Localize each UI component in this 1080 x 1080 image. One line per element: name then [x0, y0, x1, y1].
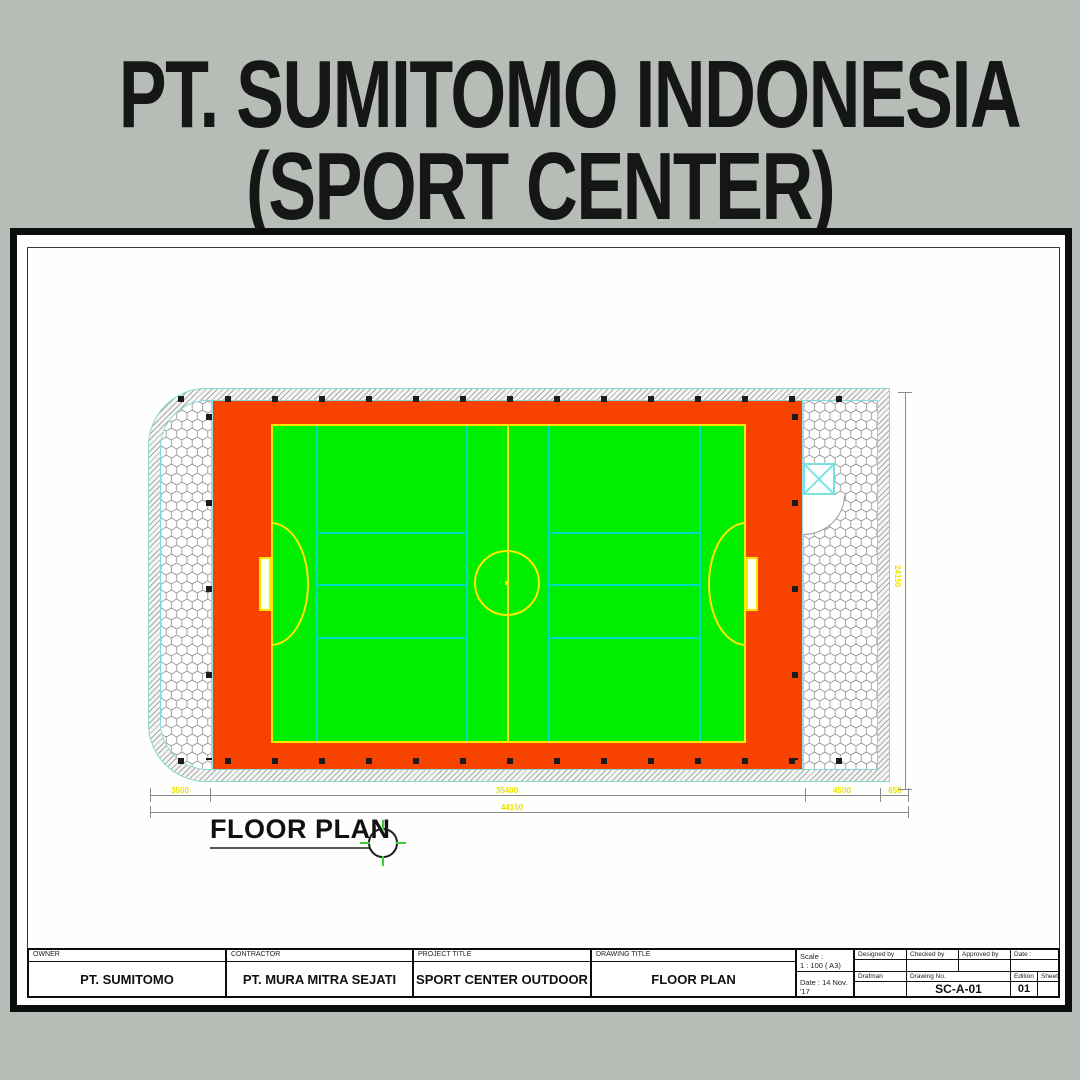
soccer-field — [271, 424, 746, 743]
title-block-drawing-title-cell: DRAWING TITLE FLOOR PLAN — [592, 950, 797, 996]
designed-by-cell: Designed by — [855, 950, 907, 971]
sheet-col-value — [1038, 982, 1058, 996]
title-block-owner-cell: OWNER PT. SUMITOMO — [29, 950, 227, 996]
floor-plan-drawing — [148, 388, 890, 782]
drafman-cell: Drafman — [855, 972, 907, 996]
dim-tick — [898, 392, 912, 393]
title-block-contractor-cell: CONTRACTOR PT. MURA MITRA SEJATI — [227, 950, 414, 996]
dim-total-bottom: 44150 — [501, 803, 523, 812]
drafman-value — [855, 982, 906, 996]
paving-hex-left — [161, 401, 211, 769]
designed-by-value — [855, 960, 906, 971]
dim-tick — [880, 788, 881, 802]
checked-by-label: Checked by — [907, 950, 958, 960]
approved-by-value — [959, 960, 1010, 971]
dim-tick — [210, 788, 211, 802]
sheet-col-cell: Sheet — [1038, 972, 1058, 996]
reference-circle — [368, 828, 398, 858]
checked-by-value — [907, 960, 958, 971]
caption-underline — [210, 847, 370, 849]
dim-tick — [898, 789, 912, 790]
drawing-no-cell: Drawing No. SC-A-01 — [907, 972, 1011, 996]
court-left-center-line — [316, 584, 468, 586]
dim-tick — [805, 788, 806, 802]
project-title-value: SPORT CENTER OUTDOOR — [414, 962, 590, 996]
date-col-label: Date : — [1011, 950, 1058, 960]
dim-tick — [150, 806, 151, 818]
approved-by-cell: Approved by — [959, 950, 1011, 971]
poster-title-line2: (SPORT CENTER) — [119, 140, 961, 234]
drawing-title-value: FLOOR PLAN — [592, 962, 795, 996]
drafman-label: Drafman — [855, 972, 906, 982]
edition-cell: Edition 01 — [1011, 972, 1038, 996]
drawing-title-label: DRAWING TITLE — [592, 950, 795, 962]
equipment-box — [803, 463, 835, 495]
dim-tick — [908, 806, 909, 818]
ref-tick-right — [396, 842, 406, 844]
designed-by-label: Designed by — [855, 950, 906, 960]
dim-segment-middle: 35400 — [496, 786, 518, 795]
dim-segment-edge: 650 — [888, 786, 901, 795]
column-posts-bottom — [178, 758, 878, 764]
court-right-center-line — [548, 584, 701, 586]
approved-by-label: Approved by — [959, 950, 1010, 960]
edition-label: Edition — [1011, 972, 1037, 982]
column-posts-top — [178, 396, 878, 402]
penalty-arc-left — [271, 522, 309, 646]
dim-segment-left: 3500 — [171, 786, 189, 795]
court-left-attack-line-bottom — [316, 637, 468, 639]
date-col-cell: Date : — [1011, 950, 1058, 971]
dim-right-vertical: 24150 — [893, 565, 902, 587]
dimension-line-vertical — [905, 392, 906, 790]
court-left-attack-line-top — [316, 532, 468, 534]
dim-segment-right: 4500 — [833, 786, 851, 795]
title-block-approval-grid: Designed by Checked by Approved by Date … — [855, 950, 1058, 996]
owner-label: OWNER — [29, 950, 225, 962]
goal-left — [259, 557, 271, 611]
checked-by-cell: Checked by — [907, 950, 959, 971]
dim-tick — [908, 788, 909, 802]
edition-value: 01 — [1011, 982, 1037, 996]
goal-right — [746, 557, 758, 611]
title-block-scale-cell: Scale : 1 : 100 ( A3) Date : 14 Nov. '17 — [797, 950, 855, 996]
court-right-attack-line-top — [548, 532, 701, 534]
column-posts-right — [792, 414, 798, 760]
dimension-line-segments — [150, 795, 908, 796]
dimension-line-total — [150, 812, 908, 813]
project-title-label: PROJECT TITLE — [414, 950, 590, 962]
poster-title-line1: PT. SUMITOMO INDONESIA — [119, 48, 961, 142]
title-block-project-cell: PROJECT TITLE SPORT CENTER OUTDOOR — [414, 950, 592, 996]
column-posts-left — [206, 414, 212, 760]
scale-label: Scale : — [800, 952, 853, 961]
ref-tick-left — [360, 842, 370, 844]
floor-plan-caption: FLOOR PLAN — [210, 814, 391, 845]
drawing-no-label: Drawing No. — [907, 972, 1010, 982]
owner-value: PT. SUMITOMO — [29, 962, 225, 996]
date-col-value — [1011, 960, 1058, 971]
title-block: OWNER PT. SUMITOMO CONTRACTOR PT. MURA M… — [27, 948, 1060, 998]
center-spot — [505, 581, 509, 585]
contractor-label: CONTRACTOR — [227, 950, 412, 962]
contractor-value: PT. MURA MITRA SEJATI — [227, 962, 412, 996]
ref-tick-bottom — [382, 856, 384, 866]
penalty-arc-right — [708, 522, 746, 646]
sheet-col-label: Sheet — [1038, 972, 1058, 982]
date-text: Date : 14 Nov. '17 — [797, 972, 853, 996]
poster-canvas: PT. SUMITOMO INDONESIA (SPORT CENTER) OW… — [0, 0, 1080, 1080]
court-right-attack-line-bottom — [548, 637, 701, 639]
paving-hex-right — [804, 401, 877, 769]
drawing-no-value: SC-A-01 — [907, 982, 1010, 996]
plan-interior — [160, 400, 878, 770]
dim-tick — [150, 788, 151, 802]
scale-text: Scale : 1 : 100 ( A3) — [797, 950, 853, 972]
scale-value: 1 : 100 ( A3) — [800, 961, 853, 970]
ref-tick-top — [382, 820, 384, 830]
